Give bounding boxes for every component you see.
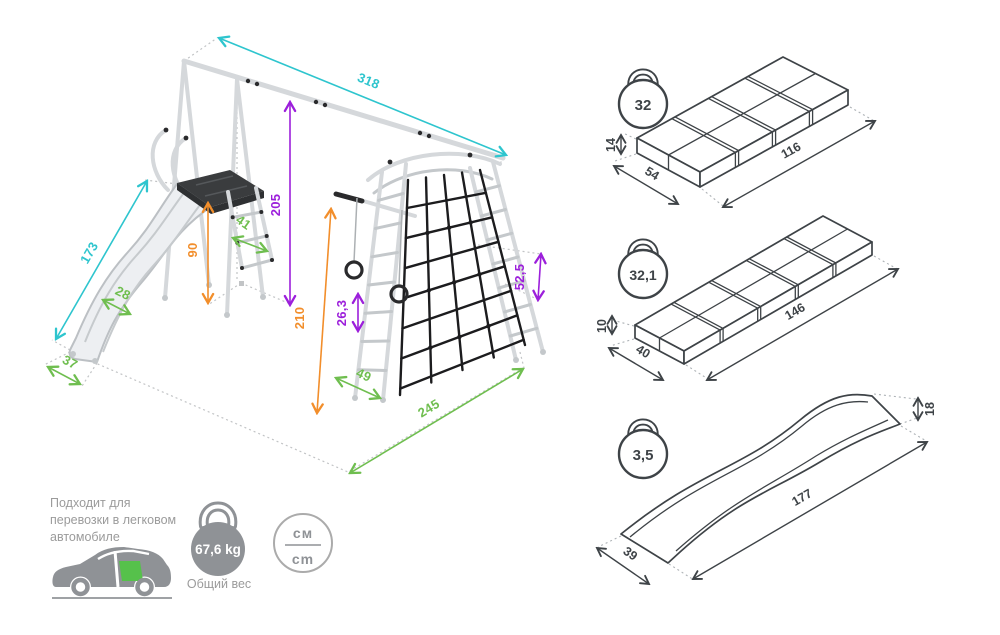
total-weight-kettlebell-icon: 67,6 kg	[191, 507, 245, 577]
clamp	[235, 241, 239, 245]
gym-ring-icon	[346, 262, 362, 278]
kettlebell-icon: 32	[619, 72, 667, 128]
units-icon: см cm	[274, 514, 332, 572]
guide-line	[184, 38, 217, 61]
transport-note: Подходит для перевозки в легковом автомо…	[50, 496, 332, 598]
clamp	[314, 100, 318, 104]
car-icon	[52, 547, 172, 598]
dim-base-length-label: 245	[415, 396, 442, 420]
knot	[477, 272, 481, 276]
tower-rung	[493, 257, 518, 264]
kettlebell-icon: 3,5	[619, 422, 667, 478]
package-weight: 3,5	[633, 447, 654, 464]
total-weight-value: 67,6 kg	[195, 542, 241, 557]
cargo-box	[119, 561, 143, 581]
dim-height-label: 14	[604, 138, 618, 152]
trapeze-grip	[336, 194, 362, 201]
dim-net-step-label: 52,5	[512, 264, 527, 291]
dim-length-label: 116	[779, 139, 803, 161]
foot-pad	[513, 357, 519, 363]
dim-platform-height-label: 90	[185, 242, 200, 257]
clamp	[323, 103, 327, 107]
foot-pad	[92, 358, 98, 364]
car-note-line-1: Подходит для	[50, 496, 131, 510]
dim-base-length-line	[350, 369, 523, 473]
tower-rung	[372, 253, 398, 257]
dim-tower-height-line	[317, 209, 331, 413]
dim-height-label: 10	[595, 319, 609, 333]
construction-lines	[44, 38, 541, 472]
foot-pad	[260, 294, 266, 300]
package-weight: 32,1	[629, 267, 656, 283]
total-weight-label: Общий вес	[187, 577, 251, 591]
car-wheel	[138, 580, 152, 594]
dim-beam-length-line	[219, 38, 506, 155]
dim-beam-length-label: 318	[355, 70, 382, 92]
units-bottom: cm	[292, 551, 314, 567]
net-line	[400, 170, 525, 395]
clamp	[388, 160, 393, 165]
ring-rope	[354, 198, 357, 262]
knot	[427, 288, 431, 292]
tower-rung	[487, 233, 512, 240]
playset-dimensions-diagram: 318 173 205 90 210 41 28 37 49 245 26,3 …	[0, 0, 1000, 635]
ground-outline	[70, 352, 523, 472]
dim-height-label: 18	[923, 402, 937, 416]
tower-rung	[505, 305, 531, 313]
clamp	[418, 131, 422, 135]
knot	[457, 335, 461, 339]
package-weight: 32	[635, 97, 652, 114]
dim-depth-label: 54	[642, 164, 661, 183]
clamp	[164, 128, 169, 133]
foot-pad	[224, 312, 230, 318]
slide-outline	[621, 395, 900, 563]
tower-rung	[365, 312, 392, 314]
clamp	[427, 134, 431, 138]
slide-body	[70, 184, 212, 362]
clamp	[259, 210, 263, 214]
clamp	[246, 79, 250, 83]
foot-pad	[540, 349, 546, 355]
car-note-line-3: автомобиле	[50, 530, 120, 544]
clamp	[231, 215, 235, 219]
knot	[428, 345, 432, 349]
units-top: см	[293, 525, 313, 541]
guide-line	[208, 283, 288, 305]
clamp	[240, 266, 244, 270]
dim-net-step-line	[538, 254, 541, 300]
kettlebell-icon: 32,1	[619, 242, 667, 298]
knot	[447, 226, 451, 230]
tower-rung	[362, 341, 389, 342]
package-box-1: 32 14 54 116	[604, 57, 876, 207]
car-note-line-2: перевозки в легковом	[50, 513, 176, 527]
clamp	[270, 258, 274, 262]
knot	[425, 231, 429, 235]
swing-beam	[184, 61, 503, 158]
dim-depth-label: 39	[621, 544, 640, 563]
knot	[468, 220, 472, 224]
foot-pad	[380, 397, 386, 403]
tower-rung	[369, 282, 395, 285]
knot	[486, 324, 490, 328]
foot-pad	[162, 295, 168, 301]
clamp	[255, 82, 259, 86]
main-dimensions: 318 173 205 90 210 41 28 37 49 245 26,3 …	[48, 38, 541, 473]
dim-length-label: 177	[789, 486, 814, 509]
dim-slide-length-label: 173	[77, 239, 101, 266]
clamp	[468, 153, 473, 158]
tower-rung	[375, 223, 400, 229]
climbing-net	[400, 170, 525, 395]
dim-tower-height-label: 210	[292, 307, 307, 330]
tower-rung	[476, 186, 500, 192]
foot-pad	[206, 282, 212, 288]
dim-total-height-label: 205	[268, 194, 283, 217]
package-box-2: 32,1 10 40 146	[595, 216, 899, 380]
tower-top-arch	[368, 154, 500, 180]
tower-rung	[379, 194, 404, 201]
slide	[70, 184, 212, 364]
clamp	[265, 234, 269, 238]
guide-node	[239, 281, 244, 286]
foot-pad	[352, 395, 358, 401]
tower-rung	[482, 210, 506, 217]
knot	[452, 280, 456, 284]
package-slide: 3,5 18 39 177	[597, 394, 937, 584]
clamp	[184, 136, 189, 141]
handrail	[153, 130, 168, 190]
dim-ring-step-label: 26,3	[334, 300, 349, 327]
car-wheel	[74, 580, 88, 594]
dim-slide-exit-line	[48, 367, 80, 384]
playset-structure	[44, 38, 546, 472]
